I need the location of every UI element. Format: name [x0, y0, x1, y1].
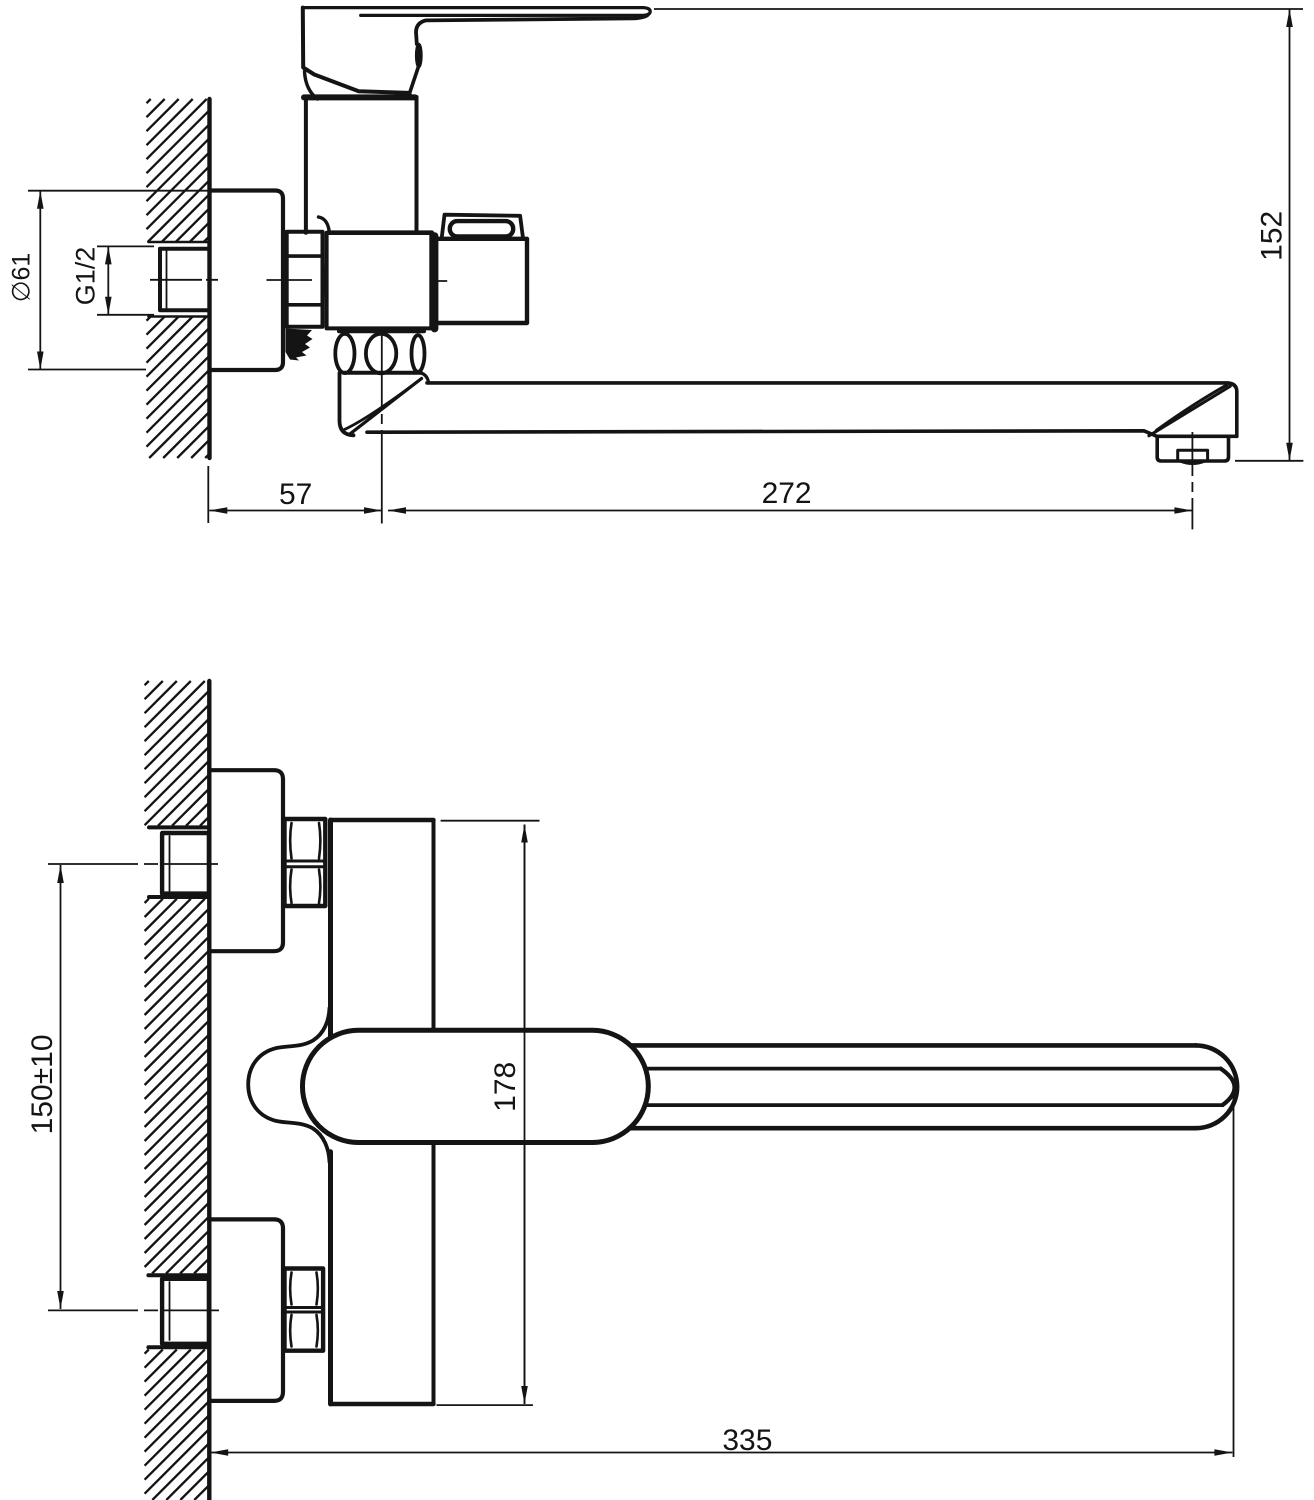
svg-text:G1/2: G1/2 [71, 247, 101, 306]
svg-text:335: 335 [722, 1424, 772, 1457]
svg-text:178: 178 [489, 1062, 522, 1112]
svg-text:152: 152 [1255, 211, 1288, 261]
svg-text:∅61: ∅61 [8, 253, 36, 303]
svg-text:272: 272 [762, 477, 812, 510]
svg-text:57: 57 [279, 478, 312, 511]
svg-text:150±10: 150±10 [26, 1034, 59, 1134]
